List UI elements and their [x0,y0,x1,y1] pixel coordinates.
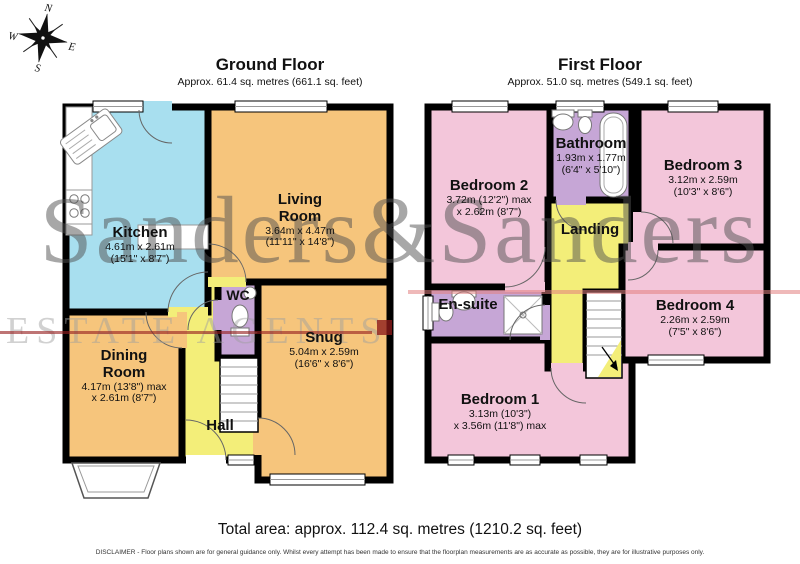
floorplan-page: N E S W [0,0,800,564]
disclaimer-text: DISCLAIMER - Floor plans shown are for g… [0,549,800,556]
hall-label: Hall [182,418,258,435]
bedroom4-label: Bedroom 4 2.26m x 2.59m (7'5" x 8'6") [625,298,765,338]
bathroom-label: Bathroom 1.93m x 1.77m (6'4" x 5'10") [545,136,637,176]
kitchen-hob-icon [66,190,92,224]
total-area-text: Total area: approx. 112.4 sq. metres (12… [0,521,800,539]
compass-rose-icon: N E S W [3,0,83,80]
bedroom2-label: Bedroom 2 3.72m (12'2") max x 2.62m (8'7… [428,178,550,218]
first-floor-subtitle-text: Approx. 51.0 sq. metres (549.1 sq. feet) [430,76,770,88]
landing-label: Landing [545,222,635,239]
watermark-underline-right [408,290,800,294]
bedroom1-label: Bedroom 1 3.13m (10'3") x 3.56m (11'8") … [430,392,570,432]
kitchen-label: Kitchen 4.61m x 2.61m (15'1" x 8'7") [80,225,200,265]
dining-room-label: Dining Room 4.17m (13'8") max x 2.61m (8… [66,348,182,405]
compass-e-label: E [67,40,77,53]
compass-n-label: N [43,2,54,15]
bedroom3-label: Bedroom 3 3.12m x 2.59m (10'3" x 8'6") [640,158,766,198]
compass-s-label: S [34,62,42,75]
bathroom-basin-icon [552,110,574,130]
snug-room [258,282,390,480]
snug-label: Snug 5.04m x 2.59m (16'6" x 8'6") [258,330,390,370]
ensuite-label: En-suite [424,297,512,314]
living-room-label: Living Room 3.64m x 4.47m (11'11" x 14'8… [215,192,385,249]
bathroom-toilet-icon [578,110,592,134]
first-stairs [586,292,622,378]
wc-label: WC [216,288,260,304]
ground-floor-title: Ground Floor Approx. 61.4 sq. metres (66… [100,55,440,88]
bay-window [72,463,160,498]
first-floor-title-text: First Floor [430,55,770,75]
ground-floor-subtitle-text: Approx. 61.4 sq. metres (661.1 sq. feet) [100,76,440,88]
ground-floor-title-text: Ground Floor [100,55,440,75]
first-floor-title: First Floor Approx. 51.0 sq. metres (549… [430,55,770,88]
compass-w-label: W [7,30,19,44]
